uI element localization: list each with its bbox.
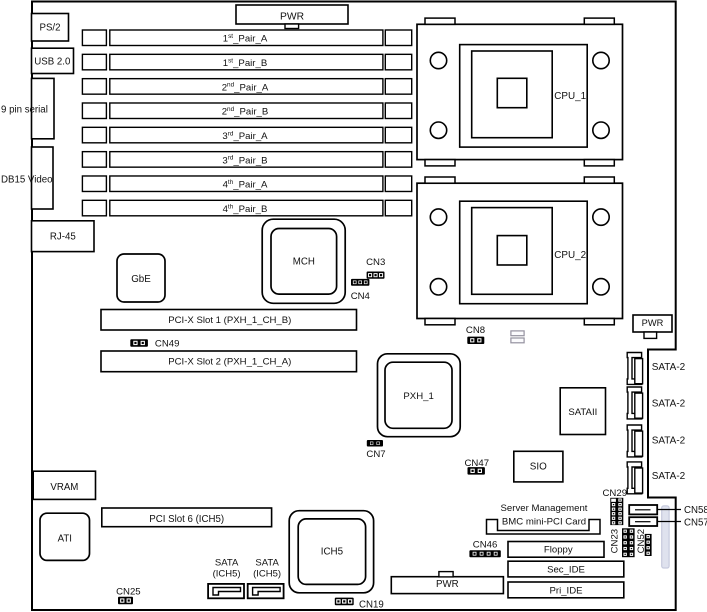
svg-text:CN57: CN57 [684,517,707,528]
svg-text:CN29: CN29 [603,488,628,499]
svg-text:PWR: PWR [436,579,459,590]
svg-text:CN8: CN8 [466,325,485,336]
svg-text:ATI: ATI [58,534,72,545]
svg-text:SATA-2: SATA-2 [652,399,686,410]
svg-text:BMC mini-PCI Card: BMC mini-PCI Card [502,516,586,527]
svg-text:Server Management: Server Management [501,503,588,514]
svg-text:CN3: CN3 [366,257,385,268]
svg-text:CN19: CN19 [359,599,384,610]
svg-text:CN46: CN46 [473,539,498,550]
svg-text:(ICH5): (ICH5) [213,568,241,579]
svg-text:CPU_2: CPU_2 [554,250,586,261]
svg-text:PCI Slot 6 (ICH5): PCI Slot 6 (ICH5) [149,514,224,525]
svg-text:PS/2: PS/2 [39,23,60,34]
svg-text:9 pin serial: 9 pin serial [1,104,48,115]
svg-text:ICH5: ICH5 [321,547,344,558]
svg-text:SATA-2: SATA-2 [652,436,686,447]
svg-text:CN25: CN25 [116,587,141,598]
svg-text:CN49: CN49 [155,338,180,349]
svg-text:SATA: SATA [255,558,279,569]
svg-text:CN23: CN23 [610,529,621,554]
svg-text:SATA-2: SATA-2 [652,471,686,482]
svg-text:CN7: CN7 [366,449,385,460]
svg-text:GbE: GbE [131,274,151,285]
svg-text:MCH: MCH [293,256,315,267]
svg-text:Sec_IDE: Sec_IDE [547,565,585,576]
svg-text:VRAM: VRAM [50,482,78,493]
svg-text:DB15 Video: DB15 Video [1,174,53,185]
svg-text:RJ-45: RJ-45 [50,232,76,243]
svg-text:CN4: CN4 [351,291,371,302]
svg-text:SIO: SIO [530,461,547,472]
svg-text:CPU_1: CPU_1 [554,91,586,102]
svg-text:USB 2.0: USB 2.0 [34,57,71,68]
svg-text:PCI-X Slot 2 (PXH_1_CH_A): PCI-X Slot 2 (PXH_1_CH_A) [168,356,291,367]
svg-text:CN58: CN58 [684,505,707,516]
svg-text:PCI-X Slot 1 (PXH_1_CH_B): PCI-X Slot 1 (PXH_1_CH_B) [168,315,291,326]
svg-text:SATA: SATA [215,558,239,569]
svg-text:PXH_1: PXH_1 [403,391,433,402]
svg-text:(ICH5): (ICH5) [253,568,281,579]
svg-text:SATAII: SATAII [568,407,597,418]
svg-text:SATA-2: SATA-2 [652,362,686,373]
svg-text:PWR: PWR [280,11,304,22]
svg-text:Pri_IDE: Pri_IDE [549,585,582,596]
svg-text:PWR: PWR [642,318,664,328]
svg-text:Floppy: Floppy [544,545,573,556]
